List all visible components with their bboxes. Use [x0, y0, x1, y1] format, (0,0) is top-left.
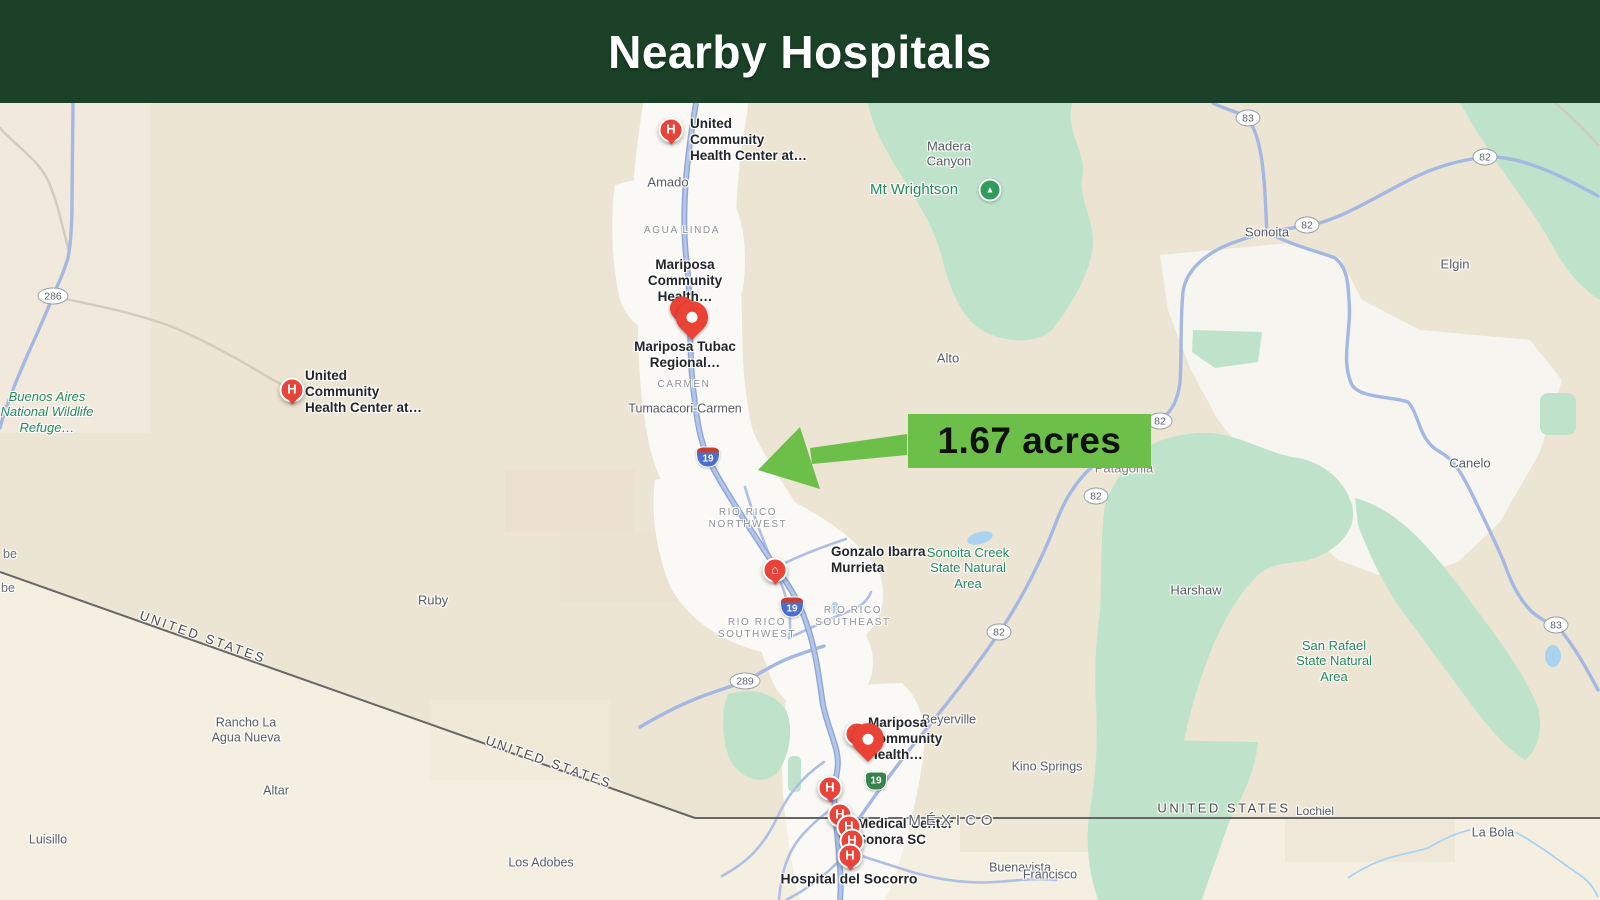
route-shield-83: 83: [1236, 110, 1261, 127]
route-shield-286: 286: [38, 288, 69, 305]
poi-label-mariposa-tubac-regional[interactable]: Mariposa Tubac Regional…: [625, 339, 745, 371]
park-label-buenos-aires-refuge: Buenos Aires National Wildlife Refuge…: [0, 389, 95, 435]
town-label-elgin: Elgin: [1441, 256, 1470, 271]
clipped-label: be: [3, 547, 17, 562]
route-shield-82: 82: [1473, 149, 1498, 166]
route-shield-83: 83: [1544, 617, 1569, 634]
land-patch: [505, 470, 635, 532]
poi-label-gonzalo-ibarra-murrieta[interactable]: Gonzalo Ibarra Murrieta: [831, 544, 935, 576]
page-title: Nearby Hospitals: [608, 25, 992, 79]
neighborhood-label-agua-linda: AGUA LINDA: [644, 225, 720, 237]
clipped-label: be: [1, 581, 15, 596]
acreage-callout: 1.67 acres: [908, 414, 1151, 468]
park-label-mt-wrightson: Mt Wrightson: [870, 181, 958, 199]
town-label-ruby: Ruby: [418, 592, 448, 607]
neighborhood-label-rio-rico-southwest: RIO RICO SOUTHWEST: [714, 617, 800, 641]
border-label-united-states: UNITED STATES: [1157, 800, 1290, 815]
land-patch: [1080, 160, 1200, 240]
route-shield-82: 82: [987, 624, 1012, 641]
hospital-marker[interactable]: H: [280, 378, 305, 403]
poi-label-united-community-health-center[interactable]: United Community Health Center at…: [305, 368, 423, 416]
town-label-sonoita: Sonoita: [1245, 224, 1289, 239]
route-shield-82: 82: [1084, 488, 1109, 505]
neighborhood-label-rio-rico-southeast: RIO RICO SOUTHEAST: [810, 605, 896, 629]
page: { "header": { "title": "Nearby Hospitals…: [0, 0, 1600, 900]
header: Nearby Hospitals: [0, 0, 1600, 103]
town-label-canelo: Canelo: [1449, 455, 1490, 470]
route-shield-289: 289: [730, 673, 761, 690]
town-label-altar: Altar: [263, 784, 289, 799]
land-patch: [0, 103, 150, 433]
town-label-los-adobes: Los Adobes: [508, 856, 573, 871]
map[interactable]: 286 83 82 82 82 82 82 83 289 19 19 19 H …: [0, 0, 1600, 900]
clinic-marker[interactable]: ⌂: [763, 558, 788, 583]
poi-label-mariposa-community-health[interactable]: Mariposa Community Health…: [868, 715, 998, 763]
poi-label-united-community-health-center[interactable]: United Community Health Center at…: [690, 116, 808, 164]
neighborhood-label-carmen: CARMEN: [658, 379, 711, 391]
mountain-peak-icon: ▲: [979, 179, 1002, 202]
town-label-rancho-la-agua-nueva: Rancho La Agua Nueva: [200, 715, 292, 745]
park-label-sonoita-creek: Sonoita Creek State Natural Area: [925, 545, 1011, 591]
town-label-francisco: Francisco: [1023, 868, 1077, 883]
town-label-la-bola: La Bola: [1472, 826, 1514, 841]
land-patch: [1285, 818, 1455, 862]
business-19-shield: 19: [865, 772, 887, 791]
town-label-luisillo: Luisillo: [29, 833, 67, 848]
town-label-kino-springs: Kino Springs: [1012, 760, 1083, 775]
border-label-mexico: MÉXICO: [908, 812, 997, 830]
neighborhood-label-rio-rico-northwest: RIO RICO NORTHWEST: [708, 507, 788, 531]
hospital-marker[interactable]: H: [818, 776, 843, 801]
town-label-amado: Amado: [647, 174, 688, 189]
town-label-alto: Alto: [937, 350, 959, 365]
hospital-marker[interactable]: H: [838, 844, 863, 869]
park-label-san-rafael: San Rafael State Natural Area: [1289, 638, 1379, 684]
town-label-lochiel: Lochiel: [1296, 804, 1334, 818]
town-label-harshaw: Harshaw: [1170, 582, 1221, 597]
route-shield-82: 82: [1295, 217, 1320, 234]
town-label-tumacacori-carmen: Tumacacori-Carmen: [628, 402, 741, 417]
town-label-madera-canyon: Madera Canyon: [917, 139, 981, 170]
route-shield-82: 82: [1148, 413, 1173, 430]
hospital-marker[interactable]: H: [659, 118, 684, 143]
